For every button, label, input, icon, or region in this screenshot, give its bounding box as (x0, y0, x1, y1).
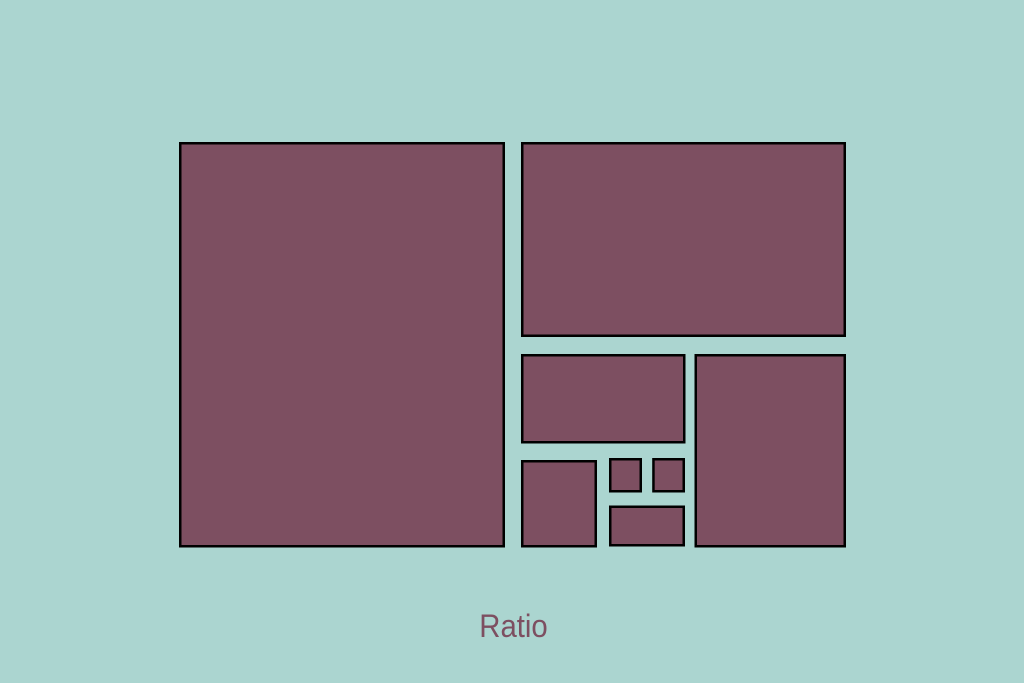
svg-text:Ratio: Ratio (479, 608, 548, 644)
